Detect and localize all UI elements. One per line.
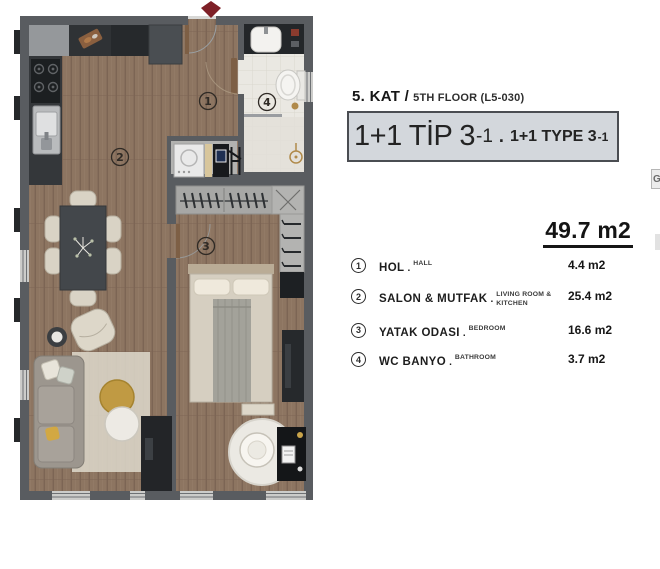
svg-text:1: 1 [204,95,212,108]
room-name-en: BEDROOM [469,325,506,334]
closet-door-icon [272,186,304,214]
bed-bench [242,404,274,415]
legend-row-bedroom: 3 YATAK ODASI.BEDROOM 16.6 m2 [351,322,623,341]
room-name-en: LIVING ROOM & KITCHEN [496,291,554,309]
floor-plan: 1 2 3 4 [0,0,340,520]
window-bottom-2 [130,491,145,500]
room-area-value: 4.4 m2 [568,258,623,272]
shower-floor [244,117,304,172]
tv-unit-shelf [145,438,153,460]
sofa [34,356,84,468]
legend-number-badge: 1 [351,258,366,273]
dryer-icon [213,144,229,177]
pillow-icon [233,279,269,295]
name-separator: . [404,263,413,274]
legend-room-name: YATAK ODASI.BEDROOM [366,322,568,341]
floor-title-tr: 5. KAT / [352,88,409,105]
clipped-edge-label: G [651,169,660,189]
legend-room-name: HOL.HALL [366,257,568,276]
dining-table [60,206,106,290]
washer-icon [174,144,204,177]
window-left-1 [20,250,29,282]
name-separator: . [487,294,496,305]
toilet-icon [276,70,305,100]
window-left-2 [20,370,29,400]
window-bottom-4 [266,491,306,500]
dark-cabinet [280,272,304,298]
bedroom-tv [285,344,291,388]
unit-type-tr: 1+1 TİP 3 [354,120,475,153]
utility-closet [174,144,241,177]
shelf-unit [280,214,304,272]
room-name-tr: WC BANYO [379,356,446,368]
name-separator: . [446,357,455,368]
coffee-table-white [105,407,139,441]
page: 1 2 3 4 5. KAT /5TH FLOOR (L5-030) 1+1 T… [0,0,660,569]
wall-stubs [14,30,20,442]
gold-pillow-icon [45,426,60,441]
entrance-arrow-icon [201,1,221,18]
stove-icon [31,59,60,103]
legend-room-name: WC BANYO.BATHROOM [366,351,568,370]
room-area-value: 25.4 m2 [568,289,623,303]
room-legend: 1 HOL.HALL 4.4 m2 2 SALON & MUTFAK.LIVIN… [351,257,623,370]
legend-number-badge: 2 [351,289,366,304]
room-area-value: 16.6 m2 [568,323,623,337]
room-name-tr: HOL [379,262,404,274]
floor-title-en: 5TH FLOOR (L5-030) [413,92,524,104]
unit-type-box: 1+1 TİP 3 -1 . 1+1 TYPE 3 -1 [347,111,619,162]
unit-type-separator: . [493,126,510,147]
legend-number-badge: 3 [351,323,366,338]
unit-type-en-suffix: -1 [598,130,609,144]
clipped-edge-sliver [655,234,660,250]
legend-number-badge: 4 [351,352,366,367]
room-name-en: BATHROOM [455,354,496,363]
room-name-en: HALL [413,260,432,269]
room-area-value: 3.7 m2 [568,352,623,366]
svg-text:4: 4 [263,96,271,109]
name-separator: . [460,328,469,339]
legend-row-hall: 1 HOL.HALL 4.4 m2 [351,257,623,276]
legend-room-name: SALON & MUTFAK.LIVING ROOM & KITCHEN [366,288,568,309]
pillow-icon [194,279,230,295]
toiletry-icon [292,103,299,110]
total-area-value: 49.7 m2 [543,217,633,248]
svg-text:3: 3 [202,240,210,253]
total-area: 49.7 m2 [505,217,633,248]
svg-text:2: 2 [116,151,124,164]
desk-chair-seat [248,441,266,459]
legend-row-living-kitchen: 2 SALON & MUTFAK.LIVING ROOM & KITCHEN 2… [351,288,623,309]
floor-title: 5. KAT /5TH FLOOR (L5-030) [352,88,524,106]
bed [188,264,274,415]
legend-row-bathroom: 4 WC BANYO.BATHROOM 3.7 m2 [351,351,623,370]
room-name-tr: SALON & MUTFAK [379,293,487,305]
kitchen-sink-icon [33,106,60,154]
unit-type-en: 1+1 TYPE 3 [510,128,597,146]
window-bottom-1 [52,491,90,500]
side-table-top [52,332,63,343]
desk [277,427,306,481]
window-bottom-3 [180,491,213,500]
room-name-tr: YATAK ODASI [379,327,460,339]
unit-type-tr-suffix: -1 [476,126,493,148]
